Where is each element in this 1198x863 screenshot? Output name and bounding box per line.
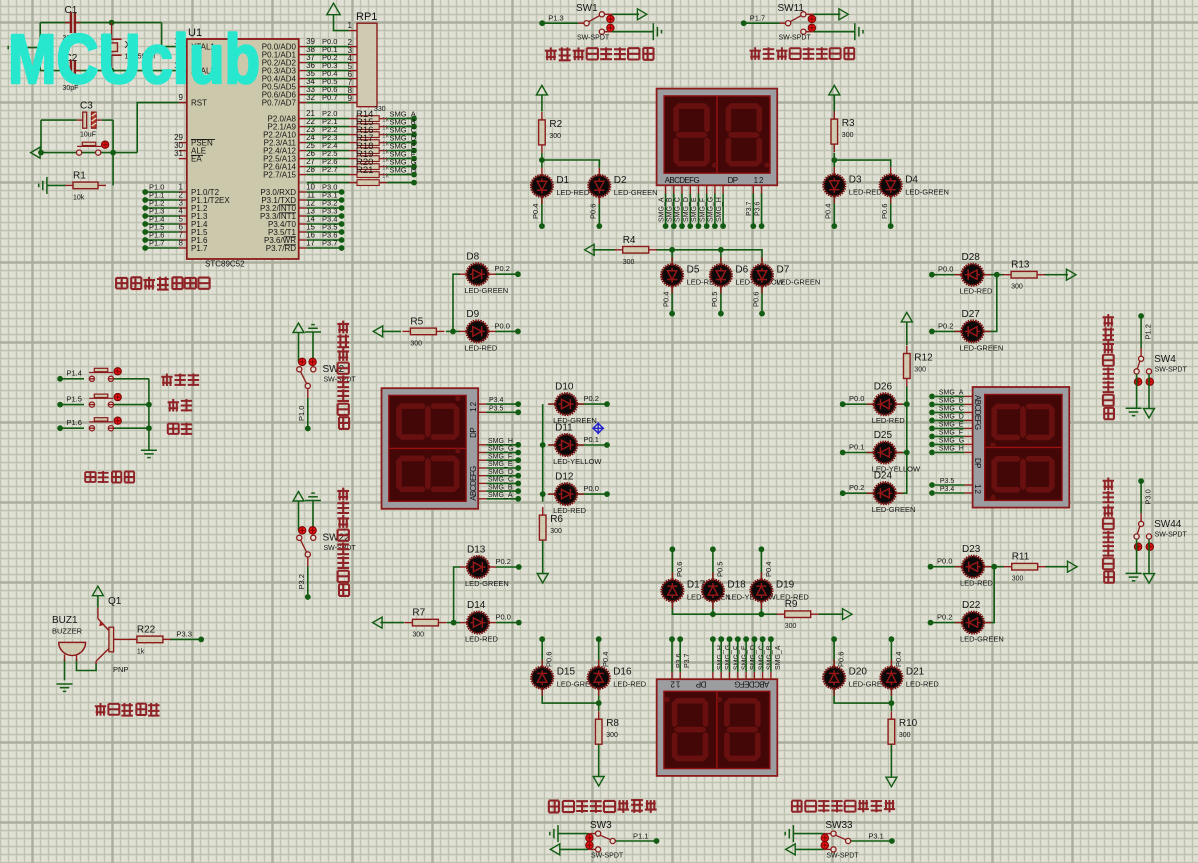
svg-text:300: 300 xyxy=(899,732,911,739)
svg-text:P2.7/A15: P2.7/A15 xyxy=(263,171,296,180)
svg-text:P0.4: P0.4 xyxy=(661,292,670,307)
svg-text:LED-RED: LED-RED xyxy=(849,187,883,196)
svg-text:SMG_C: SMG_C xyxy=(675,197,682,222)
svg-text:R3: R3 xyxy=(842,118,855,129)
svg-text:P0.2: P0.2 xyxy=(495,264,510,273)
svg-text:P1.2: P1.2 xyxy=(1144,324,1153,339)
svg-text:R5: R5 xyxy=(410,316,423,327)
svg-text:SMG_E: SMG_E xyxy=(488,461,513,468)
svg-text:P0.4: P0.4 xyxy=(894,652,903,667)
svg-text:R6: R6 xyxy=(550,514,563,525)
svg-text:P1.7: P1.7 xyxy=(149,239,164,248)
svg-text:31: 31 xyxy=(174,149,183,158)
svg-text:P3.4: P3.4 xyxy=(940,486,955,493)
svg-text:330: 330 xyxy=(374,106,386,113)
svg-text:D6: D6 xyxy=(735,264,748,275)
svg-text:D1: D1 xyxy=(556,175,569,186)
svg-text:SMG_B: SMG_B xyxy=(939,398,964,405)
svg-text:300: 300 xyxy=(1012,576,1024,583)
svg-text:300: 300 xyxy=(550,528,562,535)
svg-text:SMG_F: SMG_F xyxy=(699,198,706,222)
svg-text:D16: D16 xyxy=(613,667,632,678)
svg-text:P3.5: P3.5 xyxy=(940,478,955,485)
svg-text:D14: D14 xyxy=(467,600,486,611)
svg-text:P0.2: P0.2 xyxy=(496,557,511,566)
svg-text:D5: D5 xyxy=(687,264,700,275)
svg-text:MCUclub: MCUclub xyxy=(8,20,260,98)
svg-text:ABCDEFG: ABCDEFG xyxy=(734,679,769,688)
svg-text:SMG_G: SMG_G xyxy=(939,438,964,445)
svg-text:SMG_E: SMG_E xyxy=(691,197,698,222)
svg-text:R2: R2 xyxy=(549,119,562,130)
svg-text:D11: D11 xyxy=(555,423,573,434)
svg-text:P1.0: P1.0 xyxy=(297,406,306,421)
svg-text:P3.7/RD: P3.7/RD xyxy=(266,244,296,253)
svg-text:1k: 1k xyxy=(382,173,390,180)
svg-text:D19: D19 xyxy=(776,580,795,591)
svg-text:R22: R22 xyxy=(137,624,156,635)
svg-text:R8: R8 xyxy=(606,718,619,729)
svg-text:D4: D4 xyxy=(905,174,918,185)
svg-text:1k: 1k xyxy=(382,157,390,164)
svg-text:SW-SPDT: SW-SPDT xyxy=(826,852,859,859)
svg-text:DP: DP xyxy=(728,176,738,185)
svg-text:300: 300 xyxy=(1011,284,1023,291)
svg-text:1k: 1k xyxy=(382,117,390,124)
svg-text:SMG_G: SMG_G xyxy=(488,446,513,453)
svg-text:SMG_F: SMG_F xyxy=(939,430,963,437)
svg-text:DP: DP xyxy=(696,679,706,688)
svg-text:D18: D18 xyxy=(727,580,746,591)
svg-text:1: 1 xyxy=(348,21,353,30)
svg-text:SMG_B: SMG_B xyxy=(667,197,674,222)
svg-text:SMG_B: SMG_B xyxy=(488,484,513,491)
svg-text:P1.5: P1.5 xyxy=(67,394,82,403)
svg-text:R10: R10 xyxy=(899,718,918,729)
svg-text:SMG_D: SMG_D xyxy=(939,414,964,421)
svg-text:STC89C52: STC89C52 xyxy=(205,260,245,269)
svg-text:SMG_A: SMG_A xyxy=(488,492,513,499)
svg-text:SMG_G: SMG_G xyxy=(725,645,732,670)
svg-text:P0.4: P0.4 xyxy=(601,652,610,667)
svg-text:P1.7: P1.7 xyxy=(750,14,765,23)
svg-text:D13: D13 xyxy=(467,545,486,556)
svg-text:9: 9 xyxy=(348,94,353,103)
svg-text:R21: R21 xyxy=(356,165,373,176)
svg-text:LED-RED: LED-RED xyxy=(906,680,940,689)
svg-text:SW1: SW1 xyxy=(576,3,598,14)
svg-text:LED-RED: LED-RED xyxy=(556,188,590,197)
svg-text:D3: D3 xyxy=(849,174,862,185)
svg-text:LED-GREEN: LED-GREEN xyxy=(464,286,508,295)
svg-text:D7: D7 xyxy=(777,264,790,275)
svg-text:R9: R9 xyxy=(785,599,798,610)
svg-text:R4: R4 xyxy=(623,235,636,246)
svg-text:SMG_D: SMG_D xyxy=(488,469,513,476)
svg-text:300: 300 xyxy=(412,632,424,639)
svg-text:1k: 1k xyxy=(382,141,390,148)
svg-text:LED-GREEN: LED-GREEN xyxy=(777,277,821,286)
svg-text:P3.1: P3.1 xyxy=(868,831,883,840)
svg-text:P3.7: P3.7 xyxy=(322,239,337,248)
svg-text:SMG_F: SMG_F xyxy=(733,646,740,670)
svg-text:P1.3: P1.3 xyxy=(548,14,563,23)
svg-text:P0.1: P0.1 xyxy=(849,443,864,452)
svg-text:D26: D26 xyxy=(874,382,893,393)
svg-text:P0.5: P0.5 xyxy=(715,562,724,577)
svg-text:P0.0: P0.0 xyxy=(849,394,864,403)
svg-text:D15: D15 xyxy=(557,667,576,678)
svg-text:SW-SPDT: SW-SPDT xyxy=(1155,367,1188,374)
svg-text:P1.1: P1.1 xyxy=(633,831,648,840)
svg-text:P0.4: P0.4 xyxy=(764,562,773,577)
svg-text:SW44: SW44 xyxy=(1154,519,1182,530)
svg-text:SW33: SW33 xyxy=(825,820,853,831)
svg-text:Q1: Q1 xyxy=(108,596,122,607)
svg-text:D20: D20 xyxy=(849,667,868,678)
svg-text:SW-SPDT: SW-SPDT xyxy=(779,35,812,42)
svg-text:R7: R7 xyxy=(412,608,425,619)
svg-text:P1.4: P1.4 xyxy=(67,369,82,378)
svg-text:SMG_A: SMG_A xyxy=(939,390,964,397)
svg-text:D8: D8 xyxy=(466,252,479,263)
svg-text:1 2: 1 2 xyxy=(754,176,764,185)
svg-text:SMG_A: SMG_A xyxy=(775,645,782,670)
svg-text:R13: R13 xyxy=(1011,260,1030,271)
svg-text:LED-GREEN: LED-GREEN xyxy=(614,188,658,197)
svg-text:P0.0: P0.0 xyxy=(496,613,511,622)
svg-text:D28: D28 xyxy=(962,252,981,263)
svg-text:BUZ1: BUZ1 xyxy=(52,615,78,626)
svg-text:LED-RED: LED-RED xyxy=(872,416,906,425)
svg-text:D21: D21 xyxy=(906,667,925,678)
svg-text:SW3: SW3 xyxy=(590,820,612,831)
svg-text:ABCDEFG: ABCDEFG xyxy=(469,466,478,501)
svg-text:SMG_A: SMG_A xyxy=(658,197,665,222)
svg-text:P1.6: P1.6 xyxy=(67,418,82,427)
svg-text:SW-SPDT: SW-SPDT xyxy=(591,852,624,859)
svg-text:P3.5: P3.5 xyxy=(489,405,504,412)
svg-text:1k: 1k xyxy=(137,648,145,655)
svg-text:P0.6: P0.6 xyxy=(545,652,554,667)
svg-text:D23: D23 xyxy=(962,544,981,555)
svg-text:LED-GREEN: LED-GREEN xyxy=(872,505,916,514)
svg-text:P3.0: P3.0 xyxy=(1144,489,1153,504)
svg-text:RP1: RP1 xyxy=(356,11,377,23)
svg-text:SMG_B: SMG_B xyxy=(767,645,774,670)
svg-text:C1: C1 xyxy=(65,5,78,16)
svg-text:1k: 1k xyxy=(382,133,390,140)
svg-text:R11: R11 xyxy=(1012,552,1030,563)
svg-text:D12: D12 xyxy=(555,472,574,483)
svg-text:P0.4: P0.4 xyxy=(531,204,540,219)
svg-text:P3.4: P3.4 xyxy=(489,397,504,404)
svg-text:P2.7: P2.7 xyxy=(322,165,337,174)
svg-text:300: 300 xyxy=(785,623,797,630)
svg-text:1k: 1k xyxy=(382,165,390,172)
svg-text:P3.6: P3.6 xyxy=(754,201,761,216)
svg-text:P3.7: P3.7 xyxy=(684,653,691,668)
svg-text:10uF: 10uF xyxy=(80,132,96,139)
svg-text:10k: 10k xyxy=(73,194,85,201)
svg-text:ABCDEFG: ABCDEFG xyxy=(973,395,982,430)
svg-text:P3.3: P3.3 xyxy=(177,629,192,638)
svg-text:D22: D22 xyxy=(962,600,981,611)
svg-text:C3: C3 xyxy=(80,101,93,112)
svg-text:P0.5: P0.5 xyxy=(710,292,719,307)
svg-text:SMG_C: SMG_C xyxy=(758,645,765,670)
svg-text:PNP: PNP xyxy=(113,665,128,674)
svg-text:P0.0: P0.0 xyxy=(937,557,952,566)
svg-text:P1.7: P1.7 xyxy=(191,244,208,253)
svg-text:SW4: SW4 xyxy=(1154,354,1176,365)
svg-text:P0.1: P0.1 xyxy=(584,435,599,444)
svg-text:P0.2: P0.2 xyxy=(849,483,864,492)
svg-text:1 2: 1 2 xyxy=(973,484,982,494)
svg-text:ABCDEFG: ABCDEFG xyxy=(665,176,700,185)
svg-text:LED-RED: LED-RED xyxy=(613,680,647,689)
svg-text:1k: 1k xyxy=(382,125,390,132)
svg-text:D24: D24 xyxy=(874,471,893,482)
svg-text:SMG_H: SMG_H xyxy=(717,645,724,670)
svg-text:P0.0: P0.0 xyxy=(584,484,599,493)
svg-text:SMG_H: SMG_H xyxy=(716,197,723,222)
svg-text:P0.6: P0.6 xyxy=(589,204,598,219)
svg-text:SMG_F: SMG_F xyxy=(488,453,512,460)
svg-text:P0.0: P0.0 xyxy=(495,321,510,330)
svg-text:R12: R12 xyxy=(914,353,933,364)
svg-text:DP: DP xyxy=(469,428,478,438)
svg-text:BUZZER: BUZZER xyxy=(52,627,83,636)
svg-text:SW11: SW11 xyxy=(778,3,805,14)
svg-text:D9: D9 xyxy=(466,309,479,320)
svg-text:LED-RED: LED-RED xyxy=(465,635,499,644)
svg-text:SMG_C: SMG_C xyxy=(939,406,964,413)
svg-text:LED-GREEN: LED-GREEN xyxy=(905,187,949,196)
svg-text:SMG_D: SMG_D xyxy=(750,645,757,670)
svg-text:P0.4: P0.4 xyxy=(824,204,833,219)
svg-text:SW-SPDT: SW-SPDT xyxy=(1155,532,1188,539)
svg-text:SMG_H: SMG_H xyxy=(939,446,964,453)
svg-text:DP: DP xyxy=(973,458,982,468)
svg-text:300: 300 xyxy=(914,367,926,374)
svg-text:P0.7: P0.7 xyxy=(322,93,337,102)
svg-text:P0.6: P0.6 xyxy=(675,562,684,577)
svg-text:D10: D10 xyxy=(555,382,574,393)
svg-text:P3.2: P3.2 xyxy=(297,574,306,589)
svg-text:LED-GREEN: LED-GREEN xyxy=(960,343,1004,352)
svg-text:P0.0: P0.0 xyxy=(938,265,953,274)
svg-text:LED-RED: LED-RED xyxy=(960,579,994,588)
svg-text:P0.2: P0.2 xyxy=(938,321,953,330)
svg-text:LED-RED: LED-RED xyxy=(960,287,994,296)
svg-text:300: 300 xyxy=(842,132,854,139)
svg-text:P0.7/AD7: P0.7/AD7 xyxy=(262,99,297,108)
svg-text:1k: 1k xyxy=(382,149,390,156)
svg-text:D27: D27 xyxy=(962,309,981,320)
svg-text:SMG_H: SMG_H xyxy=(390,166,417,175)
svg-text:SW-SPDT: SW-SPDT xyxy=(577,35,610,42)
svg-text:SMG_C: SMG_C xyxy=(488,477,513,484)
svg-text:D25: D25 xyxy=(874,430,893,441)
svg-text:R1: R1 xyxy=(73,170,86,181)
svg-text:1 2: 1 2 xyxy=(469,401,478,411)
svg-text:LED-RED: LED-RED xyxy=(464,343,498,352)
svg-text:P0.2: P0.2 xyxy=(584,394,599,403)
svg-text:P0.6: P0.6 xyxy=(751,292,760,307)
svg-text:LED-YELLOW: LED-YELLOW xyxy=(553,457,602,466)
svg-text:SMG_D: SMG_D xyxy=(683,197,690,222)
svg-text:1 2: 1 2 xyxy=(670,679,680,688)
svg-text:SMG_G: SMG_G xyxy=(708,197,715,222)
svg-text:P0.6: P0.6 xyxy=(837,652,846,667)
svg-text:P3.7: P3.7 xyxy=(746,201,753,216)
svg-text:SMG_E: SMG_E xyxy=(742,645,749,670)
svg-text:LED-GREEN: LED-GREEN xyxy=(960,635,1004,644)
svg-text:300: 300 xyxy=(549,133,561,140)
svg-text:EA: EA xyxy=(191,155,202,164)
svg-text:RST: RST xyxy=(191,99,207,108)
svg-text:300: 300 xyxy=(410,340,422,347)
svg-text:300: 300 xyxy=(606,732,618,739)
svg-text:P0.2: P0.2 xyxy=(937,613,952,622)
svg-text:300: 300 xyxy=(623,259,635,266)
svg-text:D2: D2 xyxy=(614,175,627,186)
svg-text:8: 8 xyxy=(179,239,184,248)
svg-text:SMG_H: SMG_H xyxy=(488,438,513,445)
svg-text:P0.6: P0.6 xyxy=(880,204,889,219)
svg-text:SMG_E: SMG_E xyxy=(939,422,964,429)
svg-text:LED-GREEN: LED-GREEN xyxy=(465,579,509,588)
